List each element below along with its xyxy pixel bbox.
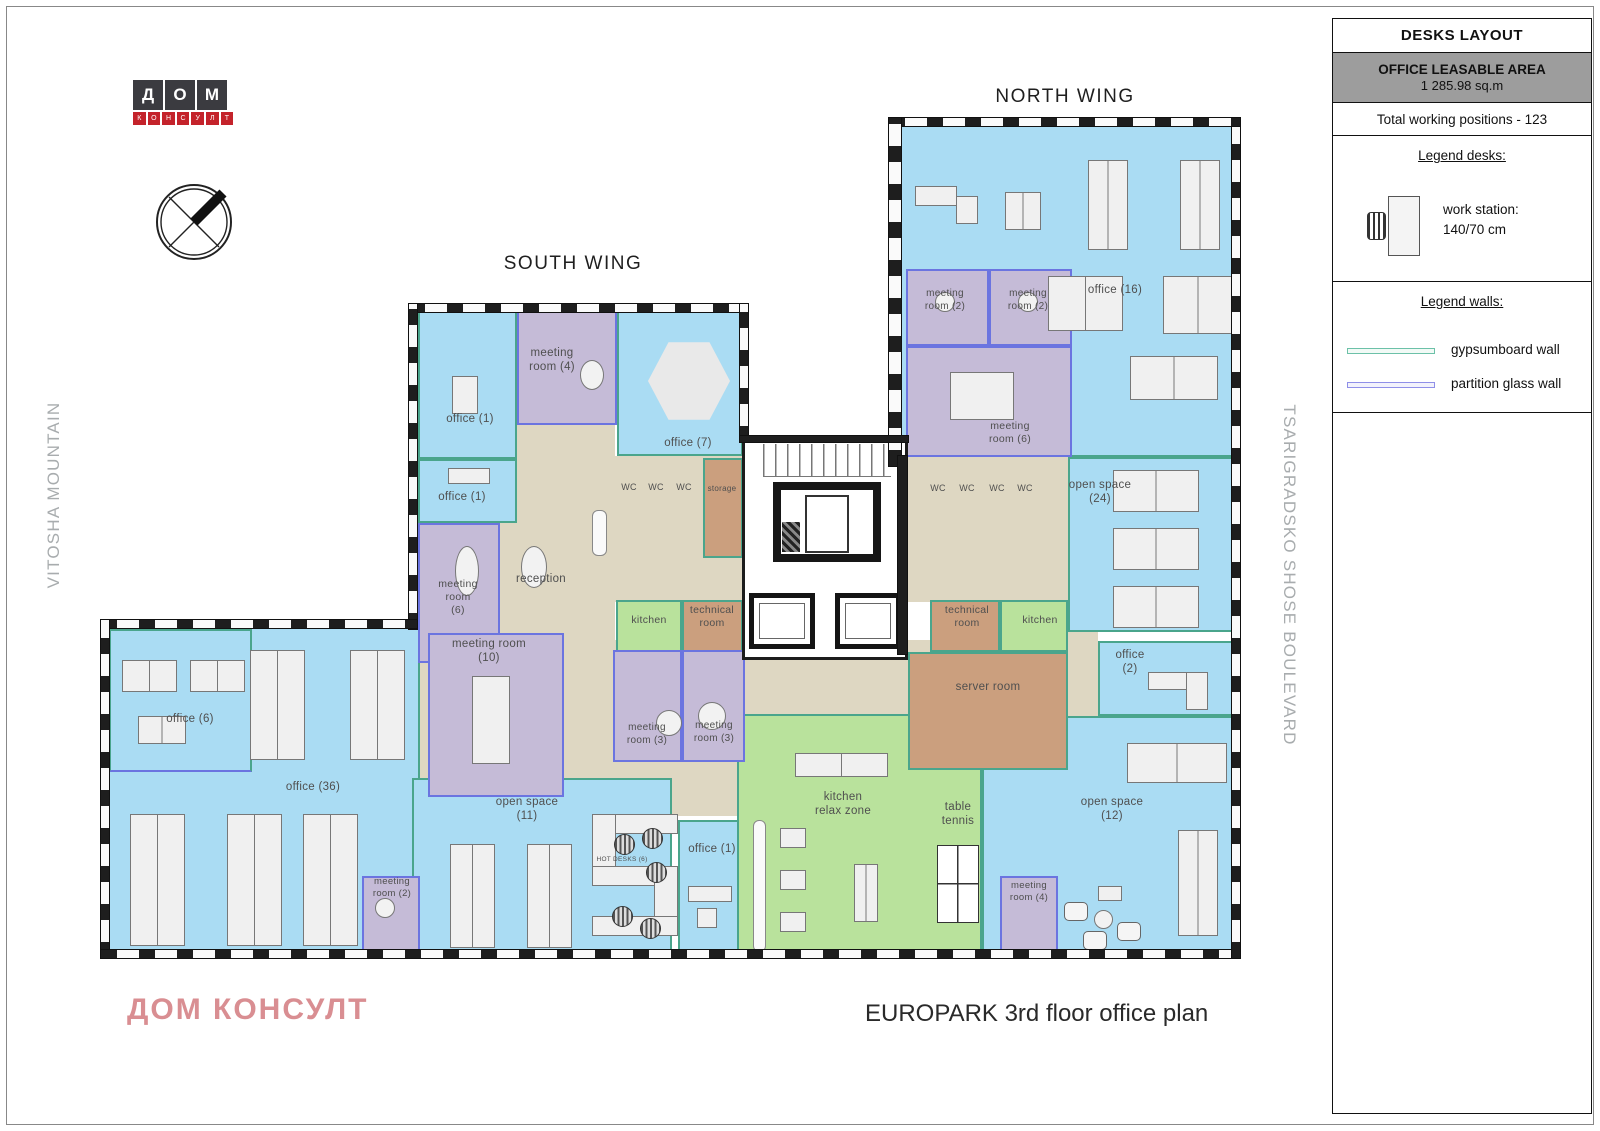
label-open-space-11: open space (11) (496, 795, 558, 824)
furniture-bench (592, 510, 607, 556)
furniture-desk (350, 650, 405, 760)
room-wc-block-north (908, 456, 1068, 602)
wall-facade-south (100, 949, 1241, 959)
wall-west-wing-facade-top (100, 619, 418, 629)
workstation-icon (1367, 196, 1427, 258)
compass-north-icon (155, 183, 233, 261)
label-open-space-24: open space (24) (1069, 478, 1131, 507)
label-hot-desks-6: HOT DESKS (6) (596, 856, 647, 864)
furniture-desk (1098, 886, 1122, 901)
wall-south-wing-facade-east (739, 303, 749, 443)
label-kitchen: kitchen (1022, 614, 1057, 627)
legend-walls-section: Legend walls: gypsumboard wall partition… (1333, 294, 1591, 413)
furniture-desk (452, 376, 478, 414)
furniture-desk (227, 814, 282, 946)
workstation-text: work station: 140/70 cm (1443, 200, 1519, 239)
logo-letter: У (191, 112, 204, 125)
logo-letter: Д (133, 80, 163, 110)
label-server-room: server room (956, 680, 1021, 694)
wall-north-wing-facade-west (888, 117, 902, 467)
label-wc: WC (930, 483, 946, 494)
workstation-label: work station: (1443, 200, 1519, 220)
total-positions: Total working positions - 123 (1333, 103, 1591, 136)
elevator-cab (845, 603, 891, 639)
furniture-desk (780, 912, 806, 932)
label-wc: WC (959, 483, 975, 494)
label-wc: WC (621, 482, 637, 493)
logo-letter: К (133, 112, 146, 125)
label-technical-room: technical room (690, 604, 734, 630)
label-table-tennis: table tennis (942, 800, 975, 829)
workstation-size: 140/70 cm (1443, 220, 1519, 240)
furniture-sofa (1117, 922, 1141, 941)
label-technical-room: technical room (945, 604, 989, 630)
furniture-oval (580, 360, 604, 390)
furniture-sofa (1064, 902, 1088, 921)
furniture-desk (780, 870, 806, 890)
furniture-desk (190, 660, 245, 692)
title-block: DESKS LAYOUT OFFICE LEASABLE AREA 1 285.… (1332, 18, 1592, 1114)
south-wing-heading: SOUTH WING (504, 253, 643, 275)
label-office-7: office (7) (664, 436, 712, 450)
titleblock-title: DESKS LAYOUT (1333, 19, 1591, 53)
room-server-room (908, 652, 1068, 770)
leasable-area-value: 1 285.98 sq.m (1421, 78, 1503, 93)
label-office-16: office (16) (1088, 283, 1142, 297)
furniture-desk (527, 844, 572, 948)
company-logo: ДОМ КОНСУЛТ (133, 80, 233, 125)
elevator-door (805, 495, 849, 553)
furniture-desk (854, 864, 878, 922)
elevator-cab (759, 603, 805, 639)
furniture-desk (448, 468, 490, 484)
room-corridor-north (1068, 632, 1098, 716)
desk-icon (1388, 196, 1420, 256)
stair-elevator-core (742, 435, 908, 660)
furniture-desk (1005, 192, 1041, 230)
logo-letter: Н (162, 112, 175, 125)
label-meeting-room-2: meeting room (2) (1008, 288, 1048, 313)
furniture-desk (780, 828, 806, 848)
label-office-6: office (6) (166, 712, 214, 726)
furniture-desk (795, 753, 888, 777)
wall-north-wing-facade-top (888, 117, 1241, 127)
furniture-desk (592, 916, 678, 936)
logo-letter: М (197, 80, 227, 110)
label-kitchen: kitchen (631, 614, 666, 627)
wall-facade-east (1231, 117, 1241, 959)
leasable-area-box: OFFICE LEASABLE AREA 1 285.98 sq.m (1333, 53, 1591, 103)
legend-desks-section: Legend desks: work station: 140/70 cm (1333, 148, 1591, 282)
furniture-round (375, 898, 395, 918)
furniture-desk (956, 196, 978, 224)
label-meeting-room-6: meeting room (6) (438, 578, 477, 617)
label-meeting-room-2: meeting room (2) (925, 288, 965, 313)
leasable-area-label: OFFICE LEASABLE AREA (1378, 62, 1546, 77)
floor-plan-sheet: ДОМ КОНСУЛТ SOUTH WING NORTH WING VITOSH… (0, 0, 1600, 1131)
furniture-desk (122, 660, 177, 692)
label-wc: WC (676, 482, 692, 493)
label-meeting-room-4: meeting room (4) (529, 346, 575, 375)
boulevard-label: TSARIGRADSKO SHOSE BOULEVARD (1279, 404, 1299, 745)
gypsumboard-wall-label: gypsumboard wall (1451, 342, 1560, 357)
wall-core-facade (739, 435, 909, 443)
logo-row-konsult: КОНСУЛТ (133, 112, 233, 125)
logo-letter: Л (206, 112, 219, 125)
furniture-desk (950, 372, 1014, 420)
furniture-schair (642, 828, 663, 849)
label-meeting-room-2: meeting room (2) (373, 876, 411, 900)
furniture-desk (1088, 160, 1128, 250)
furniture-round (1094, 910, 1113, 929)
wall-west-wing-facade-west (100, 619, 110, 959)
logo-letter: О (165, 80, 195, 110)
furniture-desk (1127, 743, 1227, 783)
label-office-36: office (36) (286, 780, 340, 794)
label-wc: WC (989, 483, 1005, 494)
label-office-1: office (1) (446, 412, 494, 426)
furniture-desk (915, 186, 957, 206)
label-open-space-12: open space (12) (1081, 795, 1143, 824)
legend-desks-heading: Legend desks: (1333, 148, 1591, 163)
furniture-desk (1163, 276, 1233, 334)
furniture-bench (753, 820, 766, 952)
glass-wall-label: partition glass wall (1451, 376, 1561, 391)
elevator (749, 593, 815, 649)
vitosha-mountain-label: VITOSHA MOUNTAIN (44, 402, 64, 589)
elevator (835, 593, 901, 649)
label-meeting-room-4: meeting room (4) (1010, 880, 1048, 904)
glass-wall-sample (1347, 382, 1435, 388)
wall-core-east-wall (897, 455, 908, 655)
furniture-desk (450, 844, 495, 948)
label-reception: reception (516, 572, 566, 586)
furniture-desk (130, 814, 185, 946)
furniture-desk (1130, 356, 1218, 400)
label-kitchen-relax-zone: kitchen relax zone (815, 790, 871, 819)
label-meeting-room-10: meeting room (10) (452, 637, 526, 666)
label-wc: WC (648, 482, 664, 493)
furniture-desk (472, 676, 510, 764)
furniture-desk (1113, 586, 1199, 628)
logo-letter: О (148, 112, 161, 125)
furniture-desk (1113, 528, 1199, 570)
label-meeting-room-3: meeting room (3) (627, 722, 667, 747)
label-storage: storage (708, 484, 737, 494)
elevator-shaft (773, 482, 881, 562)
furniture-desk (1180, 160, 1220, 250)
furniture-desk (1178, 830, 1218, 936)
wall-south-wing-facade-west (408, 303, 418, 630)
label-office-1: office (1) (438, 490, 486, 504)
furniture-ttable (937, 845, 979, 923)
furniture-desk (697, 908, 717, 928)
label-wc: WC (1017, 483, 1033, 494)
legend-walls-heading: Legend walls: (1333, 294, 1591, 309)
furniture-desk (1186, 672, 1208, 710)
furniture-schair (640, 918, 661, 939)
chair-icon (1367, 212, 1386, 240)
label-office-1: office (1) (688, 842, 736, 856)
room-office-6 (109, 629, 252, 772)
furniture-schair (612, 906, 633, 927)
furniture-schair (646, 862, 667, 883)
label-meeting-room-6: meeting room (6) (989, 420, 1031, 446)
logo-letter: Т (221, 112, 234, 125)
room-storage (703, 458, 743, 558)
footer-company-name: ДОМ КОНСУЛТ (127, 993, 369, 1027)
logo-row-dom: ДОМ (133, 80, 233, 110)
wall-south-wing-facade-top (408, 303, 748, 313)
label-office-2: office (2) (1115, 648, 1144, 677)
shaft-wall-hatch (782, 522, 800, 552)
plan-title: EUROPARK 3rd floor office plan (865, 1000, 1208, 1028)
logo-letter: С (177, 112, 190, 125)
furniture-desk (303, 814, 358, 946)
north-wing-heading: NORTH WING (995, 86, 1134, 108)
furniture-desk (250, 650, 305, 760)
gypsumboard-wall-sample (1347, 348, 1435, 354)
furniture-schair (614, 834, 635, 855)
furniture-desk (688, 886, 732, 902)
furniture-sofa (1083, 931, 1107, 950)
label-meeting-room-3: meeting room (3) (694, 720, 734, 745)
staircase (763, 444, 891, 477)
